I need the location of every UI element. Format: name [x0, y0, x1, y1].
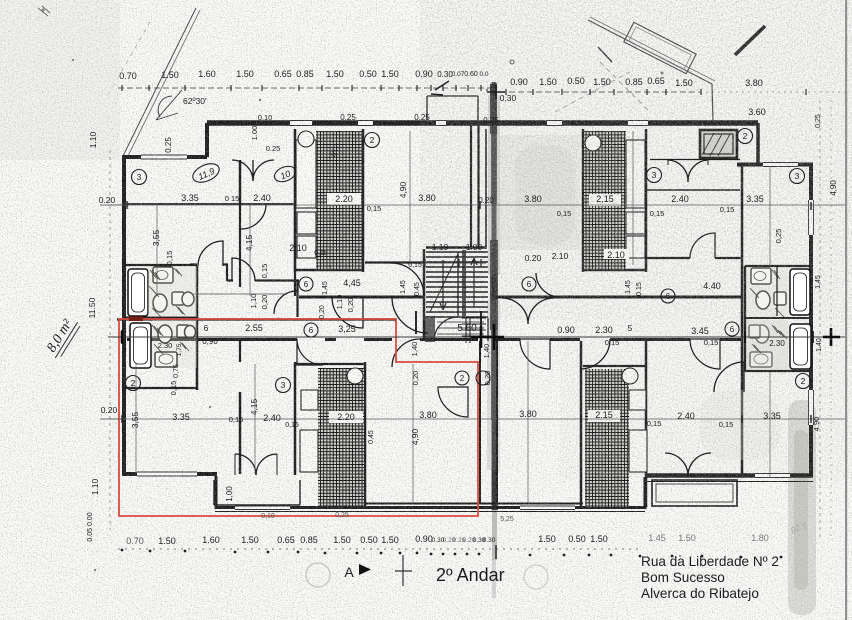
svg-text:0,25: 0,25 — [335, 512, 349, 519]
svg-text:1.10: 1.10 — [88, 131, 98, 148]
svg-text:2: 2 — [370, 135, 375, 145]
svg-text:1.00: 1.00 — [466, 242, 483, 252]
svg-text:0.30: 0.30 — [500, 93, 517, 103]
svg-text:0.15: 0.15 — [636, 282, 643, 296]
svg-text:0.30: 0.30 — [483, 537, 496, 544]
svg-text:1.45: 1.45 — [400, 280, 407, 294]
svg-text:4,90: 4,90 — [398, 181, 408, 198]
svg-text:2.40: 2.40 — [253, 193, 271, 203]
svg-text:1.50: 1.50 — [590, 534, 608, 544]
svg-text:2.10: 2.10 — [552, 251, 569, 261]
svg-text:6: 6 — [304, 280, 309, 289]
svg-text:3.45: 3.45 — [691, 326, 709, 336]
svg-text:0.0: 0.0 — [479, 71, 488, 78]
svg-text:0,15: 0,15 — [557, 209, 572, 218]
svg-text:2: 2 — [131, 378, 136, 388]
svg-text:3.80: 3.80 — [745, 78, 763, 88]
svg-text:2.55: 2.55 — [245, 323, 263, 333]
svg-text:0.50: 0.50 — [360, 535, 378, 545]
svg-text:0,15: 0,15 — [229, 415, 244, 424]
svg-text:0.20: 0.20 — [478, 196, 494, 205]
svg-text:0.20: 0.20 — [525, 253, 542, 263]
svg-text:2: 2 — [801, 376, 806, 386]
svg-text:1.80: 1.80 — [751, 533, 769, 543]
svg-text:1,40: 1,40 — [410, 342, 419, 357]
svg-text:2: 2 — [743, 131, 748, 141]
svg-text:1,00: 1,00 — [225, 486, 234, 502]
svg-text:0.25: 0.25 — [164, 137, 173, 153]
svg-text:3: 3 — [281, 380, 286, 390]
svg-text:11.50: 11.50 — [87, 297, 97, 318]
svg-text:Rua da Liberdade Nº 2: Rua da Liberdade Nº 2 — [641, 554, 779, 569]
svg-text:3,25: 3,25 — [338, 324, 356, 334]
svg-text:0.90: 0.90 — [510, 77, 528, 87]
svg-text:2.40: 2.40 — [671, 194, 689, 204]
svg-text:0.65: 0.65 — [274, 69, 292, 79]
svg-text:1.50: 1.50 — [539, 77, 557, 87]
svg-text:0,15: 0,15 — [720, 205, 735, 214]
svg-text:0.85: 0.85 — [296, 69, 314, 79]
svg-text:0,15: 0,15 — [165, 251, 174, 266]
svg-text:2.20: 2.20 — [337, 412, 355, 422]
svg-text:0.90: 0.90 — [415, 69, 433, 79]
svg-text:1.50: 1.50 — [158, 536, 176, 546]
svg-text:1.50: 1.50 — [675, 78, 693, 88]
svg-text:2.30: 2.30 — [769, 339, 785, 348]
svg-text:3.35: 3.35 — [172, 412, 190, 422]
svg-text:0,15: 0,15 — [605, 338, 620, 347]
svg-text:1.50: 1.50 — [381, 69, 399, 79]
svg-text:5 60: 5 60 — [457, 323, 477, 334]
svg-text:2.30: 2.30 — [595, 325, 613, 335]
svg-text:1.10: 1.10 — [432, 242, 449, 252]
svg-text:1.10: 1.10 — [90, 478, 100, 495]
svg-text:0.70: 0.70 — [126, 536, 144, 546]
svg-text:1.50: 1.50 — [236, 69, 254, 79]
svg-text:0,90: 0,90 — [202, 337, 218, 346]
svg-text:2.40: 2.40 — [677, 411, 695, 421]
svg-text:4,15: 4,15 — [244, 234, 254, 251]
svg-text:3.35: 3.35 — [763, 411, 781, 421]
svg-text:2,15: 2,15 — [596, 194, 614, 204]
svg-text:4.40: 4.40 — [703, 281, 721, 291]
svg-text:2.10: 2.10 — [607, 250, 625, 260]
svg-text:1.60: 1.60 — [198, 69, 216, 79]
svg-text:4,45: 4,45 — [343, 278, 361, 288]
svg-text:1.50: 1.50 — [241, 535, 259, 545]
svg-text:3.80: 3.80 — [418, 193, 436, 203]
svg-text:0.50: 0.50 — [568, 534, 586, 544]
svg-text:0,25: 0,25 — [774, 229, 783, 244]
svg-text:0,20: 0,20 — [483, 371, 492, 386]
svg-text:3,55: 3,55 — [130, 411, 140, 428]
svg-text:0,15: 0,15 — [704, 338, 719, 347]
svg-text:0,20: 0,20 — [411, 371, 420, 386]
svg-text:0.50: 0.50 — [567, 76, 585, 86]
svg-text:2.20: 2.20 — [335, 194, 353, 204]
svg-text:1.40: 1.40 — [816, 338, 823, 352]
svg-text:3.80: 3.80 — [419, 410, 437, 420]
svg-text:0,15: 0,15 — [169, 381, 178, 396]
svg-text:0,15: 0,15 — [650, 209, 665, 218]
svg-text:1.50: 1.50 — [161, 70, 179, 80]
svg-text:2.10: 2.10 — [289, 243, 307, 253]
svg-text:0 15: 0 15 — [225, 194, 240, 203]
svg-text:0,15: 0,15 — [367, 204, 382, 213]
svg-text:0,20: 0,20 — [346, 298, 355, 313]
svg-text:1.50: 1.50 — [326, 69, 344, 79]
svg-text:1.45: 1.45 — [648, 533, 666, 543]
svg-text:3,55: 3,55 — [151, 229, 161, 246]
svg-text:0,20: 0,20 — [260, 295, 269, 310]
svg-text:0.25: 0.25 — [414, 113, 430, 122]
svg-text:1.50: 1.50 — [678, 533, 696, 543]
svg-text:4.90: 4.90 — [812, 417, 821, 432]
svg-text:A: A — [344, 564, 354, 580]
svg-text:0.25: 0.25 — [483, 116, 499, 125]
svg-text:6: 6 — [730, 325, 735, 334]
svg-text:0.60: 0.60 — [464, 71, 478, 78]
svg-text:2.15: 2.15 — [595, 410, 613, 420]
svg-text:2º Andar: 2º Andar — [436, 565, 505, 585]
svg-text:0.90: 0.90 — [415, 534, 433, 544]
svg-text:4,90: 4,90 — [829, 180, 838, 196]
svg-text:3: 3 — [137, 172, 142, 182]
svg-text:4,90: 4,90 — [410, 428, 420, 445]
svg-text:3: 3 — [795, 171, 800, 181]
svg-text:1.45: 1.45 — [815, 275, 822, 289]
svg-text:1.00: 1.00 — [250, 126, 259, 141]
svg-text:0,15: 0,15 — [719, 420, 734, 429]
svg-text:1.60: 1.60 — [202, 535, 220, 545]
svg-text:3.80: 3.80 — [519, 409, 537, 419]
svg-text:0.07: 0.07 — [452, 71, 465, 78]
svg-text:0.45: 0.45 — [414, 282, 421, 296]
svg-text:0,15: 0,15 — [647, 419, 662, 428]
svg-text:2.30: 2.30 — [158, 341, 173, 350]
svg-text:2.40: 2.40 — [263, 413, 281, 423]
svg-text:0.05 0.00: 0.05 0.00 — [87, 512, 94, 541]
svg-text:0.25: 0.25 — [266, 144, 281, 153]
svg-text:0,15: 0,15 — [285, 422, 299, 429]
svg-text:1.50: 1.50 — [538, 534, 556, 544]
svg-text:5,25: 5,25 — [500, 516, 514, 523]
svg-text:0.25: 0.25 — [340, 113, 356, 122]
svg-text:3.60: 3.60 — [748, 107, 766, 117]
svg-text:1,10: 1,10 — [335, 295, 344, 310]
svg-text:0.20: 0.20 — [99, 195, 116, 205]
svg-text:0.90: 0.90 — [557, 325, 575, 335]
svg-text:1.50: 1.50 — [381, 535, 399, 545]
svg-text:1,45: 1,45 — [322, 281, 329, 295]
svg-text:0,15: 0,15 — [314, 250, 328, 257]
svg-text:0.25: 0.25 — [815, 114, 822, 128]
svg-text:0,45: 0,45 — [368, 430, 375, 444]
svg-text:0,15: 0,15 — [408, 262, 422, 269]
svg-text:6: 6 — [204, 323, 209, 333]
svg-text:0.70: 0.70 — [119, 71, 137, 81]
svg-text:1.50: 1.50 — [333, 535, 351, 545]
svg-text:0.10: 0.10 — [258, 113, 273, 122]
svg-text:0,15: 0,15 — [260, 264, 269, 279]
svg-text:Alverca do Ribatejo: Alverca do Ribatejo — [641, 586, 759, 601]
svg-text:1,10: 1,10 — [249, 294, 258, 309]
svg-text:0.85: 0.85 — [625, 77, 643, 87]
svg-text:0.50: 0.50 — [359, 69, 377, 79]
svg-text:5: 5 — [628, 323, 633, 333]
svg-text:6: 6 — [309, 326, 314, 335]
svg-text:4,15: 4,15 — [249, 398, 259, 415]
svg-text:1,75: 1,75 — [176, 343, 183, 356]
svg-text:6: 6 — [527, 280, 532, 289]
svg-text:1.50: 1.50 — [593, 77, 611, 87]
svg-text:0.85: 0.85 — [300, 535, 318, 545]
svg-text:0.65: 0.65 — [647, 76, 665, 86]
svg-text:2: 2 — [460, 374, 465, 383]
svg-text:3: 3 — [652, 170, 657, 180]
svg-text:3.35: 3.35 — [181, 193, 199, 203]
svg-text:0.20: 0.20 — [101, 405, 118, 415]
svg-text:6: 6 — [666, 292, 671, 301]
svg-text:Bom Sucesso: Bom Sucesso — [641, 570, 725, 585]
svg-text:3.80: 3.80 — [524, 194, 542, 204]
svg-text:1.45: 1.45 — [625, 280, 632, 294]
svg-text:0,10: 0,10 — [261, 513, 275, 520]
svg-text:0,20: 0,20 — [319, 305, 326, 319]
svg-text:3.35: 3.35 — [746, 194, 764, 204]
svg-text:0.65: 0.65 — [277, 535, 295, 545]
svg-text:62º30': 62º30' — [183, 96, 207, 106]
svg-text:1,40: 1,40 — [482, 344, 491, 359]
svg-text:0,75: 0,75 — [173, 364, 180, 378]
